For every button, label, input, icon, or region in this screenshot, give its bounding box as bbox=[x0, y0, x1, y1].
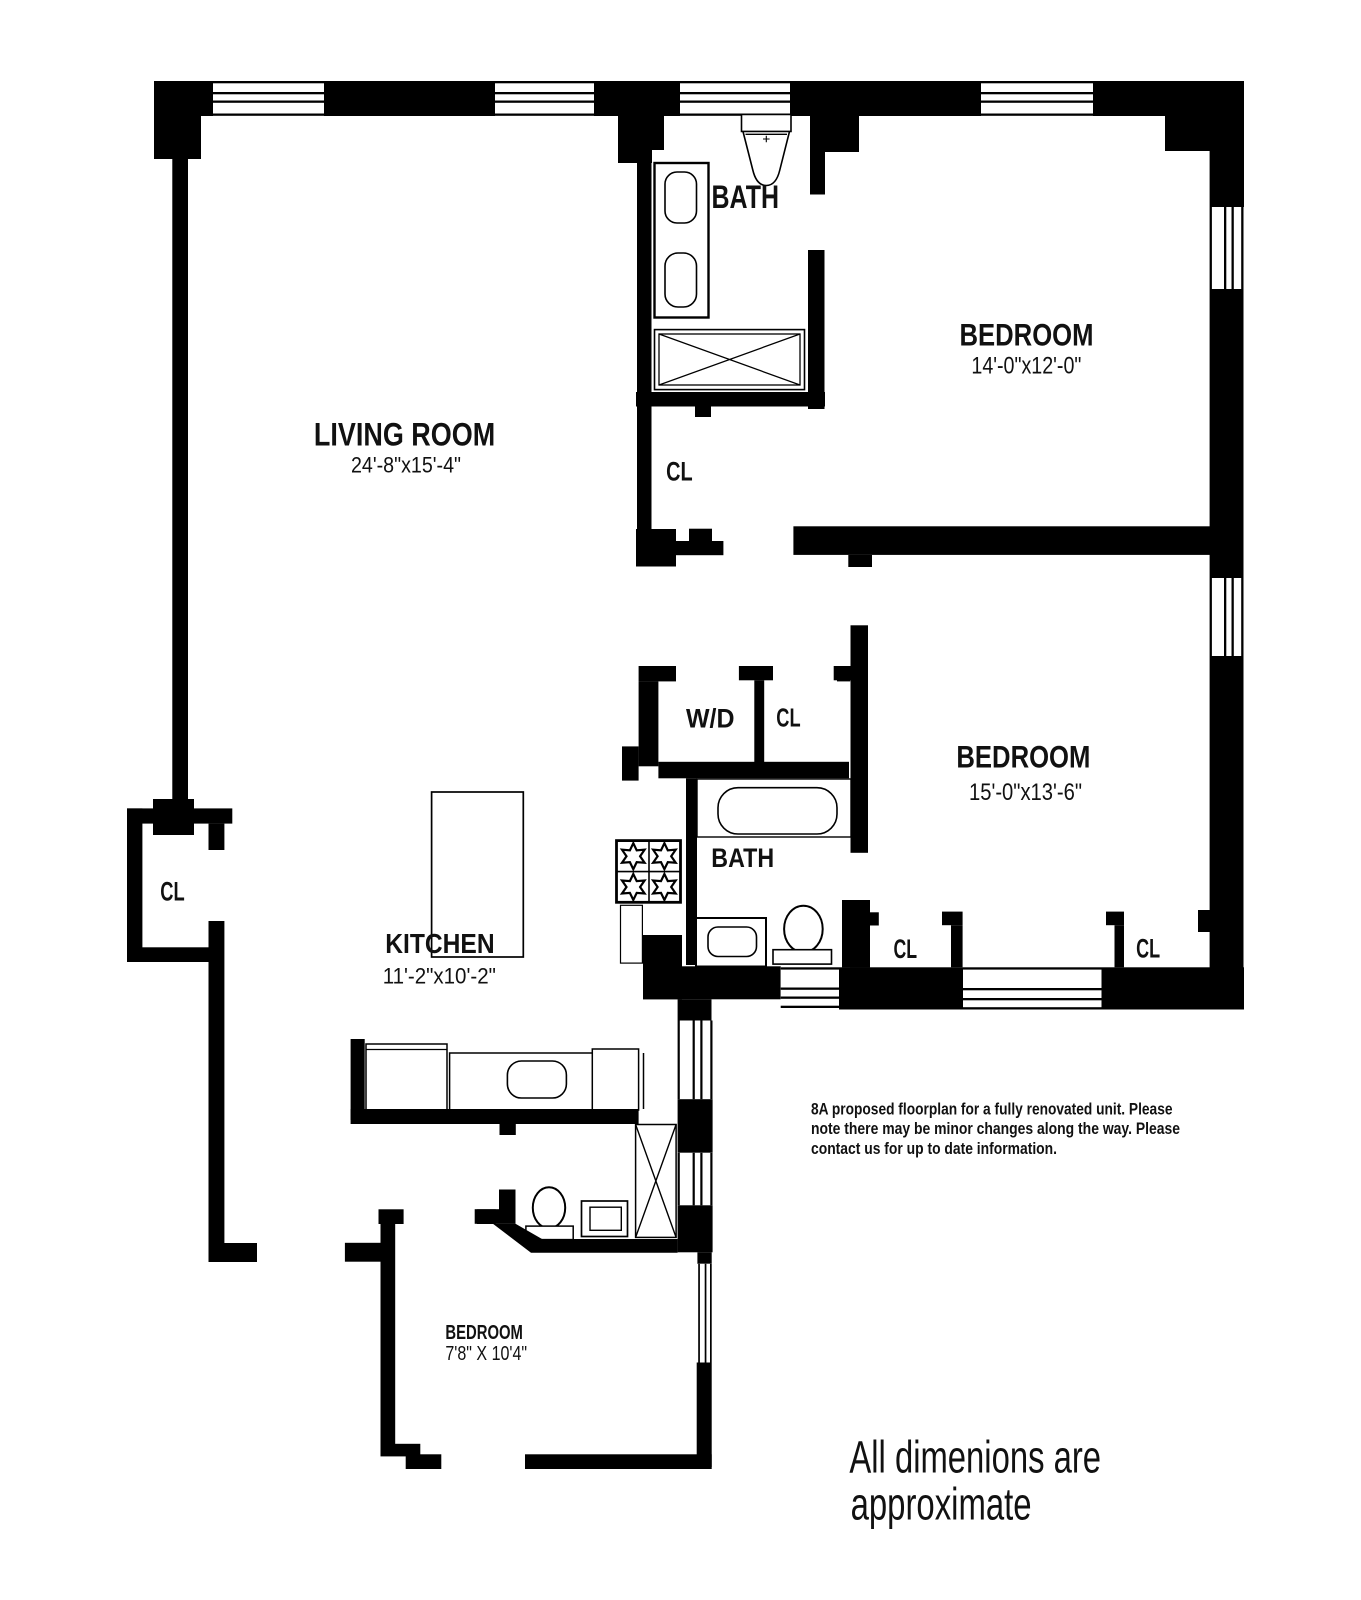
svg-text:15'-0"x13'-6": 15'-0"x13'-6" bbox=[969, 779, 1082, 806]
svg-text:8A proposed floorplan for a fu: 8A proposed floorplan for a fully renova… bbox=[811, 1100, 1173, 1119]
svg-text:BEDROOM: BEDROOM bbox=[445, 1322, 523, 1344]
svg-text:BATH: BATH bbox=[711, 843, 774, 873]
svg-text:contact us for up to date info: contact us for up to date information. bbox=[811, 1139, 1057, 1158]
svg-text:W/D: W/D bbox=[686, 704, 735, 734]
svg-text:All dimenions are: All dimenions are bbox=[849, 1431, 1101, 1482]
svg-text:7'8" X 10'4": 7'8" X 10'4" bbox=[445, 1343, 527, 1365]
svg-text:approximate: approximate bbox=[851, 1479, 1032, 1530]
svg-text:CL: CL bbox=[666, 456, 693, 486]
svg-text:24'-8"x15'-4": 24'-8"x15'-4" bbox=[351, 453, 461, 478]
svg-text:BEDROOM: BEDROOM bbox=[956, 739, 1090, 775]
svg-text:11'-2"x10'-2": 11'-2"x10'-2" bbox=[383, 964, 496, 989]
svg-text:CL: CL bbox=[894, 934, 918, 964]
svg-text:KITCHEN: KITCHEN bbox=[385, 928, 494, 959]
svg-text:CL: CL bbox=[160, 876, 184, 906]
svg-text:BATH: BATH bbox=[712, 179, 780, 215]
svg-text:BEDROOM: BEDROOM bbox=[960, 317, 1094, 353]
svg-text:note there may be minor change: note there may be minor changes along th… bbox=[811, 1119, 1180, 1138]
svg-text:14'-0"x12'-0": 14'-0"x12'-0" bbox=[971, 353, 1081, 380]
svg-text:LIVING ROOM: LIVING ROOM bbox=[314, 417, 495, 453]
svg-text:CL: CL bbox=[776, 703, 800, 733]
svg-text:CL: CL bbox=[1136, 934, 1160, 964]
